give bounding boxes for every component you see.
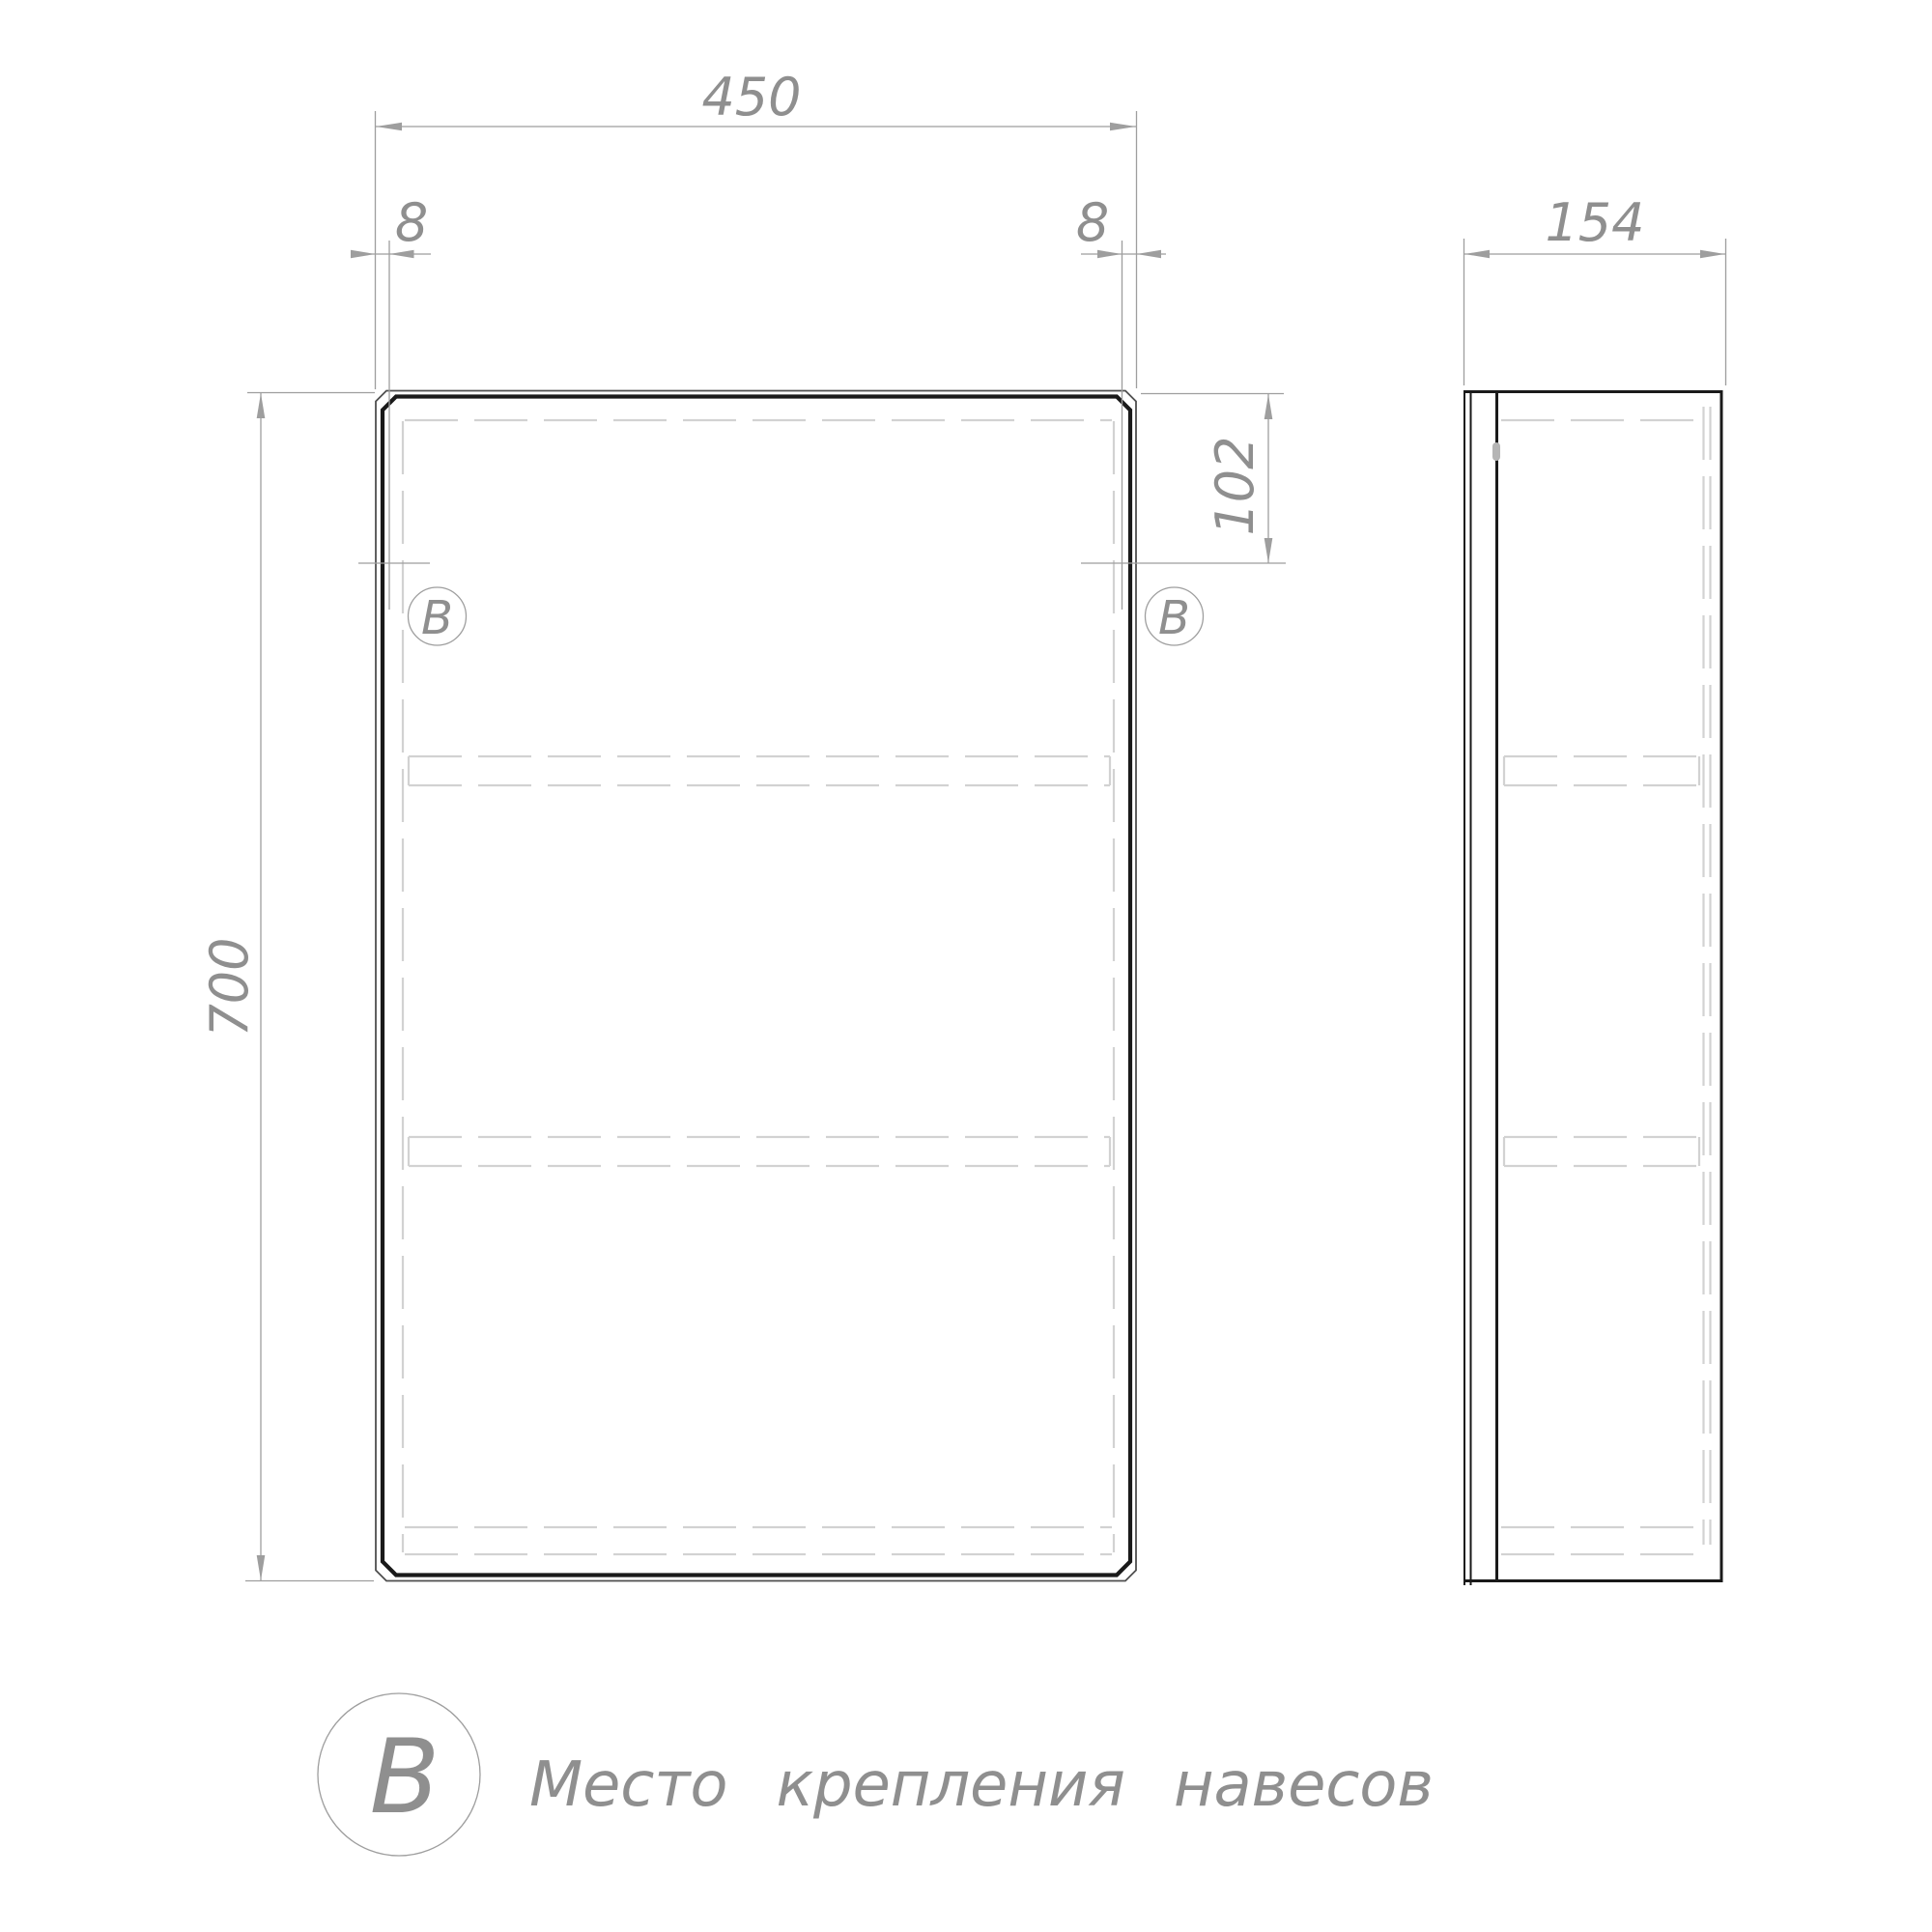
legend: В Место крепления навесов — [318, 1693, 1437, 1856]
dim-mount-offset: 102 — [1141, 394, 1284, 564]
dim-width-value: 450 — [701, 67, 801, 128]
mount-reference-lines — [358, 241, 1286, 610]
hinge-mark — [1492, 442, 1500, 461]
cabinet-drawing: В В 450 8 8 — [0, 0, 1932, 1932]
legend-symbol: В — [370, 1718, 440, 1836]
shelf-2 — [409, 1137, 1110, 1166]
front-view: В В 450 8 8 — [199, 67, 1286, 1581]
dim-offset-right: 8 — [1076, 192, 1166, 258]
dim-depth-value: 154 — [1545, 192, 1644, 253]
shelf-1 — [409, 756, 1110, 785]
side-shelf-2 — [1504, 1137, 1699, 1166]
bottom-panel — [405, 1527, 1112, 1554]
dim-height: 700 — [199, 393, 375, 1581]
mirror-facet-line — [383, 397, 1130, 1576]
dim-height-value: 700 — [199, 937, 260, 1037]
dim-mount-offset-value: 102 — [1205, 436, 1265, 535]
dim-offset-right-value: 8 — [1076, 192, 1109, 253]
side-body-outline — [1463, 390, 1723, 1585]
dim-width: 450 — [376, 67, 1137, 389]
mirror-door-edge — [376, 391, 1136, 1581]
marker-front-right: В — [1146, 587, 1204, 645]
side-shelf-1 — [1504, 756, 1699, 785]
marker-label-left: В — [421, 591, 453, 645]
front-hidden-lines — [403, 420, 1114, 1554]
side-view: 154 — [1463, 192, 1726, 1585]
marker-front-left: В — [409, 587, 467, 645]
marker-label-right: В — [1158, 591, 1190, 645]
technical-drawing-page: В В 450 8 8 — [0, 0, 1932, 1932]
legend-caption: Место крепления навесов — [529, 1749, 1437, 1821]
dim-offset-left: 8 — [351, 192, 431, 258]
dim-depth: 154 — [1464, 192, 1726, 385]
side-bottom-panel — [1501, 1527, 1701, 1554]
side-hidden-lines — [1501, 407, 1711, 1554]
dim-offset-left-value: 8 — [395, 192, 428, 253]
